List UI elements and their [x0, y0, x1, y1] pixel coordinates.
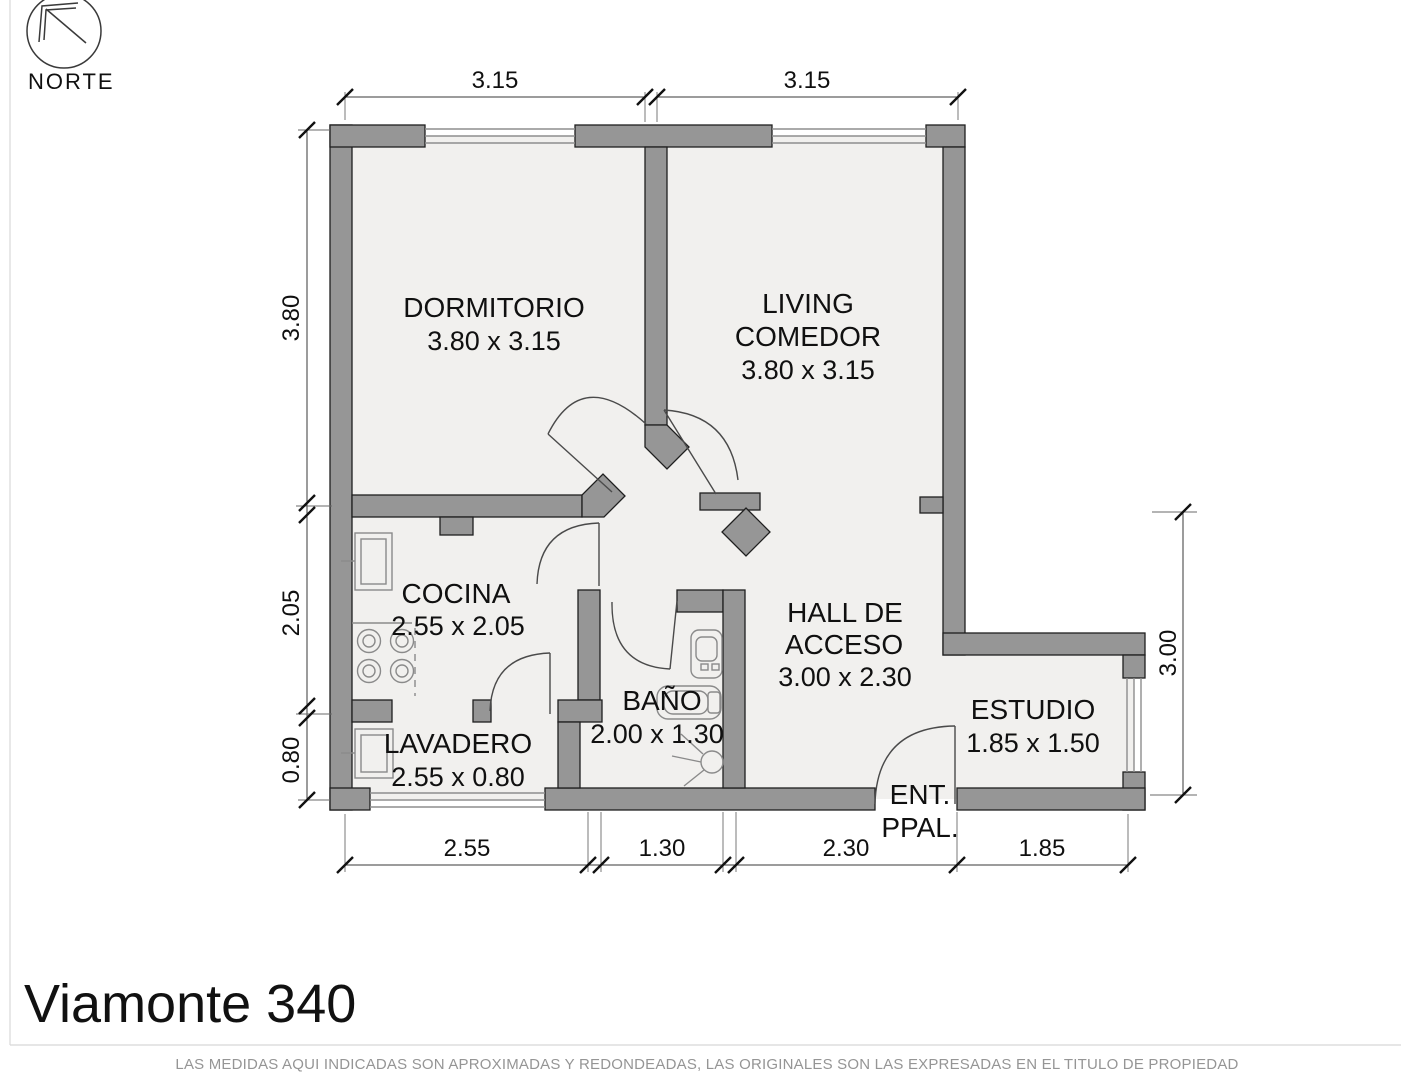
room-label-estudio: ESTUDIO: [971, 694, 1095, 725]
dimension-top: 3.15 3.15: [337, 67, 966, 122]
floor-plan-drawing: NORTE: [0, 0, 1401, 1079]
room-label-living-2: COMEDOR: [735, 321, 881, 352]
wall-top-a: [330, 125, 425, 147]
wall-bano-right: [723, 590, 745, 788]
north-label: NORTE: [28, 69, 115, 94]
dimension-bottom: 2.55 1.30 2.30 1.85: [337, 812, 1136, 873]
floor-plan-page: NORTE: [0, 0, 1401, 1079]
dim-left-3: 0.80: [278, 737, 305, 784]
room-label-living-1: LIVING: [762, 288, 854, 319]
wall-living-right: [943, 147, 965, 655]
room-label-entrada-1: ENT.: [890, 779, 951, 810]
wall-stub-living-hall: [920, 497, 943, 513]
wall-lavadero-bano: [558, 722, 580, 788]
room-label-hall-2: ACCESO: [785, 629, 903, 660]
wall-hall-top: [943, 633, 1145, 655]
room-size-lavadero: 2.55 x 0.80: [391, 762, 525, 792]
wall-lavadero-top-a: [352, 700, 392, 722]
room-label-dormitorio: DORMITORIO: [403, 292, 584, 323]
wall-bottom-c: [957, 788, 1145, 810]
dim-bottom-3: 2.30: [823, 835, 870, 862]
wall-bano-top: [677, 590, 723, 612]
room-label-entrada-2: PPAL.: [881, 812, 958, 843]
dim-bottom-1: 2.55: [444, 835, 491, 862]
north-compass: NORTE: [27, 0, 115, 94]
disclaimer-text: LAS MEDIDAS AQUI INDICADAS SON APROXIMAD…: [175, 1056, 1238, 1073]
wall-dorm-cocina: [352, 495, 582, 517]
wall-bottom-a: [330, 788, 370, 810]
compass-circle-icon: [27, 0, 101, 68]
dim-top-1: 3.15: [472, 67, 519, 94]
room-size-bano: 2.00 x 1.30: [590, 719, 724, 749]
wall-divider-dorm-living: [645, 147, 667, 425]
dimension-left: 3.80 2.05 0.80: [278, 122, 332, 808]
wall-cocina-bano: [578, 590, 600, 700]
wall-left: [330, 125, 352, 810]
dim-bottom-2: 1.30: [639, 835, 686, 862]
wall-estudio-right-a: [1123, 655, 1145, 678]
wall-hall-bar: [700, 493, 760, 510]
dimension-right: 3.00: [1150, 504, 1197, 803]
wall-stub-cocina: [440, 517, 473, 535]
wall-lavadero-top-b: [473, 700, 491, 722]
room-label-bano: BAÑO: [622, 685, 701, 716]
dim-bottom-4: 1.85: [1019, 835, 1066, 862]
room-size-dormitorio: 3.80 x 3.15: [427, 326, 561, 356]
dim-left-2: 2.05: [278, 590, 305, 637]
dim-left-1: 3.80: [278, 295, 305, 342]
room-label-cocina: COCINA: [402, 578, 511, 609]
room-size-living: 3.80 x 3.15: [741, 355, 875, 385]
dim-right-1: 3.00: [1155, 630, 1182, 677]
room-size-estudio: 1.85 x 1.50: [966, 728, 1100, 758]
north-arrow-icon: [39, 3, 86, 43]
room-size-cocina: 2.55 x 2.05: [391, 611, 525, 641]
wall-top-b: [575, 125, 772, 147]
room-label-lavadero: LAVADERO: [384, 728, 532, 759]
dim-top-2: 3.15: [784, 67, 831, 94]
page-title: Viamonte 340: [24, 974, 356, 1034]
wall-bottom-b: [545, 788, 875, 810]
room-size-hall: 3.00 x 2.30: [778, 662, 912, 692]
wall-top-c: [926, 125, 965, 147]
room-label-hall-1: HALL DE: [787, 597, 903, 628]
